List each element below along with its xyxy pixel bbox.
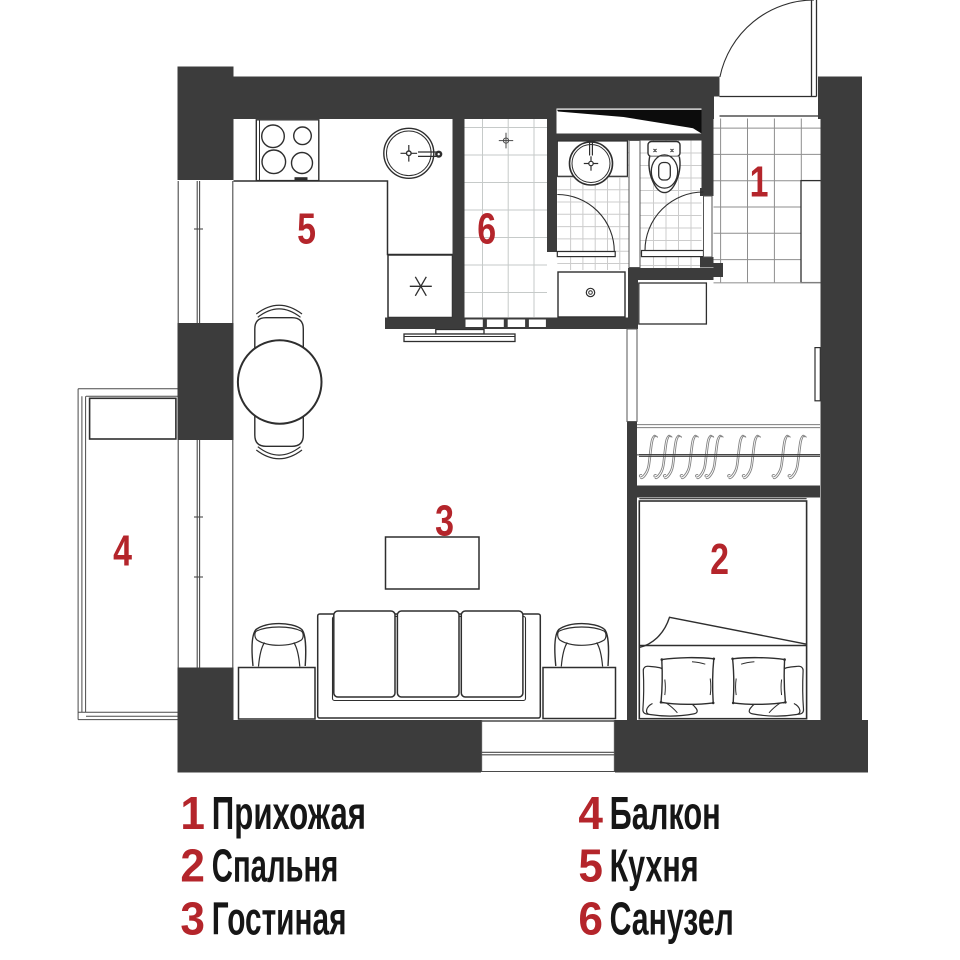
svg-text:Прихожая: Прихожая (212, 788, 366, 840)
svg-text:2: 2 (710, 536, 729, 584)
svg-text:Санузел: Санузел (610, 894, 734, 945)
svg-text:5: 5 (297, 205, 316, 253)
svg-text:6: 6 (578, 892, 603, 944)
svg-text:2: 2 (180, 839, 205, 891)
svg-text:Спальня: Спальня (212, 841, 339, 892)
svg-text:1: 1 (180, 787, 205, 839)
svg-text:1: 1 (750, 159, 769, 207)
svg-text:4: 4 (113, 528, 132, 576)
svg-text:3: 3 (435, 498, 454, 546)
svg-text:3: 3 (180, 892, 205, 944)
svg-text:Балкон: Балкон (610, 788, 721, 840)
svg-text:6: 6 (477, 206, 496, 254)
svg-text:5: 5 (578, 839, 603, 891)
svg-text:4: 4 (578, 787, 603, 839)
svg-text:Гостиная: Гостиная (212, 894, 347, 945)
svg-text:Кухня: Кухня (610, 840, 699, 892)
